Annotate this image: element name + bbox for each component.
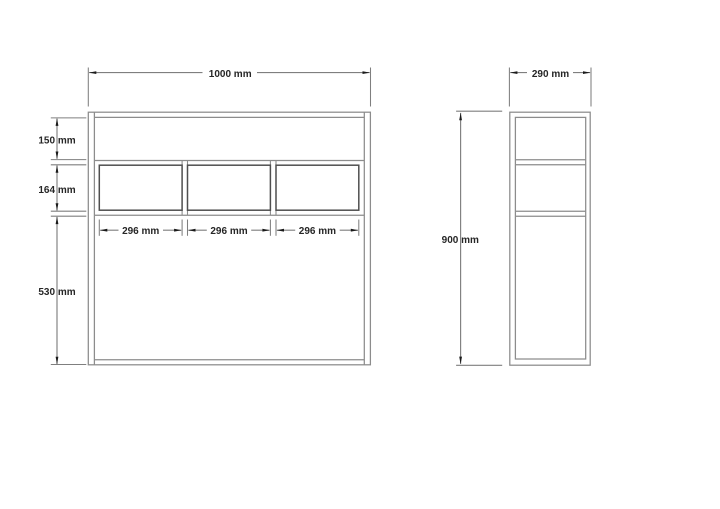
svg-text:1000 mm: 1000 mm [209, 69, 252, 80]
svg-text:296 mm: 296 mm [210, 226, 247, 237]
svg-text:164 mm: 164 mm [38, 185, 75, 196]
svg-text:296 mm: 296 mm [122, 226, 159, 237]
svg-text:530 mm: 530 mm [38, 287, 75, 298]
svg-text:900 mm: 900 mm [442, 235, 479, 246]
svg-text:150 mm: 150 mm [38, 135, 75, 146]
svg-text:296 mm: 296 mm [299, 226, 336, 237]
svg-text:290 mm: 290 mm [532, 69, 569, 80]
